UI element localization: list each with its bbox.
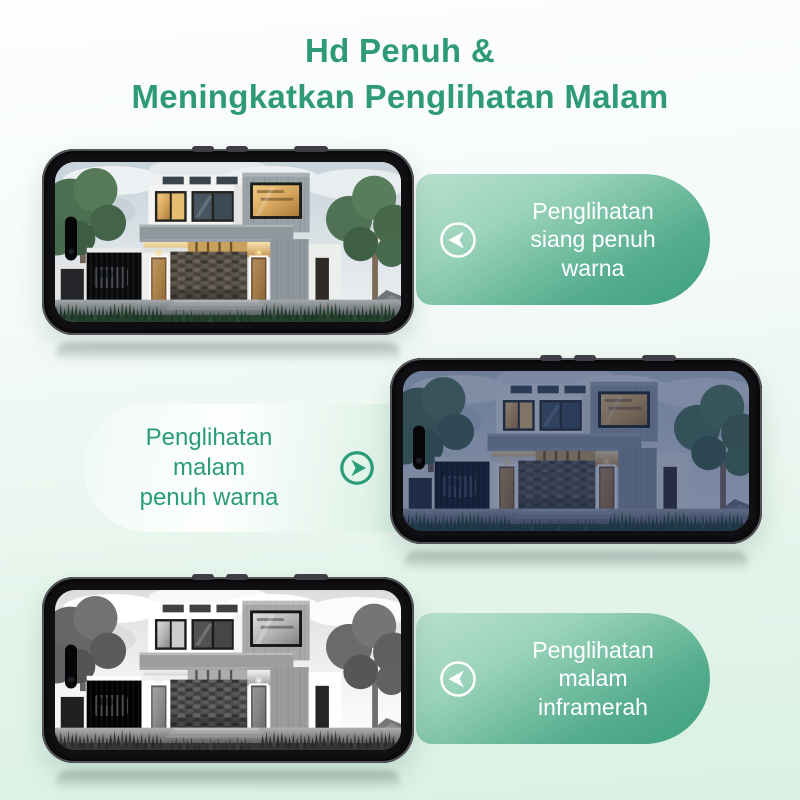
volume-button <box>226 146 248 152</box>
label-day-full-color: Penglihatan siang penuh warna <box>416 174 710 305</box>
promo-banner: Hd Penuh & Meningkatkan Penglihatan Mala… <box>0 0 800 800</box>
phone-mockup-infrared <box>42 577 414 763</box>
volume-button <box>226 574 248 580</box>
page-title: Hd Penuh & Meningkatkan Penglihatan Mala… <box>0 28 800 119</box>
badge-label: Penglihatan malam inframerah <box>476 636 710 722</box>
arrow-left-circle-icon <box>438 659 478 699</box>
phone-screen-infrared <box>55 590 401 750</box>
volume-button <box>192 574 214 580</box>
title-line-1: Hd Penuh & <box>0 28 800 74</box>
badge-label: Penglihatan siang penuh warna <box>476 197 710 283</box>
title-line-2: Meningkatkan Penglihatan Malam <box>0 74 800 120</box>
phone-mockup-day <box>42 149 414 335</box>
phone-reflection <box>56 771 400 793</box>
phone-screen-night <box>403 371 749 531</box>
volume-button <box>540 355 562 361</box>
dynamic-island <box>65 216 77 260</box>
arrow-right-circle-icon <box>338 449 376 487</box>
badge-label-line: siang penuh <box>476 225 710 254</box>
badge-label-line: warna <box>476 254 710 283</box>
badge-label-line: malam <box>84 453 334 483</box>
badge-label-line: Penglihatan <box>476 197 710 226</box>
phone-reflection <box>56 343 400 365</box>
volume-button <box>574 355 596 361</box>
badge-label-line: inframerah <box>476 693 710 722</box>
power-button <box>294 574 328 580</box>
badge-label-line: penuh warna <box>84 483 334 513</box>
badge-label-line: malam <box>476 664 710 693</box>
arrow-left-circle-icon <box>438 220 478 260</box>
power-button <box>294 146 328 152</box>
phone-screen-day <box>55 162 401 322</box>
label-night-full-color: Penglihatan malam penuh warna <box>84 404 420 532</box>
badge-label-line: Penglihatan <box>476 636 710 665</box>
badge-label: Penglihatan malam penuh warna <box>84 423 334 512</box>
volume-button <box>192 146 214 152</box>
badge-label-line: Penglihatan <box>84 423 334 453</box>
phone-reflection <box>404 552 748 574</box>
phone-mockup-night <box>390 358 762 544</box>
power-button <box>642 355 676 361</box>
label-night-infrared: Penglihatan malam inframerah <box>416 613 710 744</box>
dynamic-island <box>65 644 77 688</box>
dynamic-island <box>413 425 425 469</box>
